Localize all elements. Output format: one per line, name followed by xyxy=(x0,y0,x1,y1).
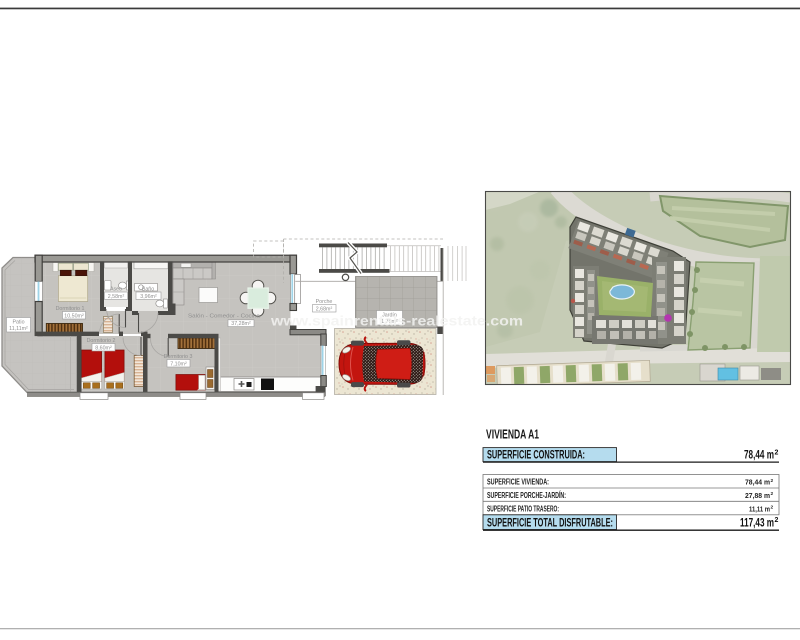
svg-text:2,68m²: 2,68m² xyxy=(316,306,333,312)
svg-text:78,44 m: 78,44 m xyxy=(745,478,770,487)
svg-text:2: 2 xyxy=(775,517,779,524)
svg-text:SUPERFICIE PORCHE-JARDÍN:: SUPERFICIE PORCHE-JARDÍN: xyxy=(487,491,566,500)
svg-text:8,60m²: 8,60m² xyxy=(95,345,112,351)
svg-text:2: 2 xyxy=(771,491,774,497)
svg-text:37,28m²: 37,28m² xyxy=(231,321,251,327)
svg-text:3,96m²: 3,96m² xyxy=(140,294,157,300)
svg-text:2: 2 xyxy=(771,478,774,484)
svg-text:VIVIENDA A1: VIVIENDA A1 xyxy=(486,428,539,442)
svg-text:Dormitorio 1: Dormitorio 1 xyxy=(56,306,85,312)
svg-text:78,44 m: 78,44 m xyxy=(744,449,774,462)
svg-text:117,43 m: 117,43 m xyxy=(740,516,774,529)
svg-text:www.spainrentals-realestate.co: www.spainrentals-realestate.com xyxy=(270,313,523,329)
svg-text:SUPERFICIE VIVIENDA:: SUPERFICIE VIVIENDA: xyxy=(487,478,549,487)
svg-text:2,58m²: 2,58m² xyxy=(108,294,125,300)
svg-text:10,50m²: 10,50m² xyxy=(64,313,84,319)
svg-text:Dormitorio 2: Dormitorio 2 xyxy=(87,338,116,344)
svg-text:Patio: Patio xyxy=(12,320,24,326)
svg-text:Salón - Comedor - Cocina: Salón - Comedor - Cocina xyxy=(188,314,260,320)
svg-text:11,11 m: 11,11 m xyxy=(749,504,770,513)
svg-text:11,11m²: 11,11m² xyxy=(9,326,28,332)
svg-text:27,88 m: 27,88 m xyxy=(745,491,770,500)
svg-text:2: 2 xyxy=(771,505,774,511)
svg-text:2: 2 xyxy=(775,450,779,457)
svg-text:SUPERFICIE TOTAL DISFRUTABLE:: SUPERFICIE TOTAL DISFRUTABLE: xyxy=(487,516,613,529)
svg-text:SUPERFICIE PATIO TRASERO:: SUPERFICIE PATIO TRASERO: xyxy=(487,504,559,513)
svg-text:7,10m²: 7,10m² xyxy=(170,361,187,367)
svg-text:Porche: Porche xyxy=(316,299,333,305)
svg-text:SUPERFICIE CONSTRUIDA:: SUPERFICIE CONSTRUIDA: xyxy=(487,449,585,462)
svg-text:Dormitorio 3: Dormitorio 3 xyxy=(164,354,193,360)
